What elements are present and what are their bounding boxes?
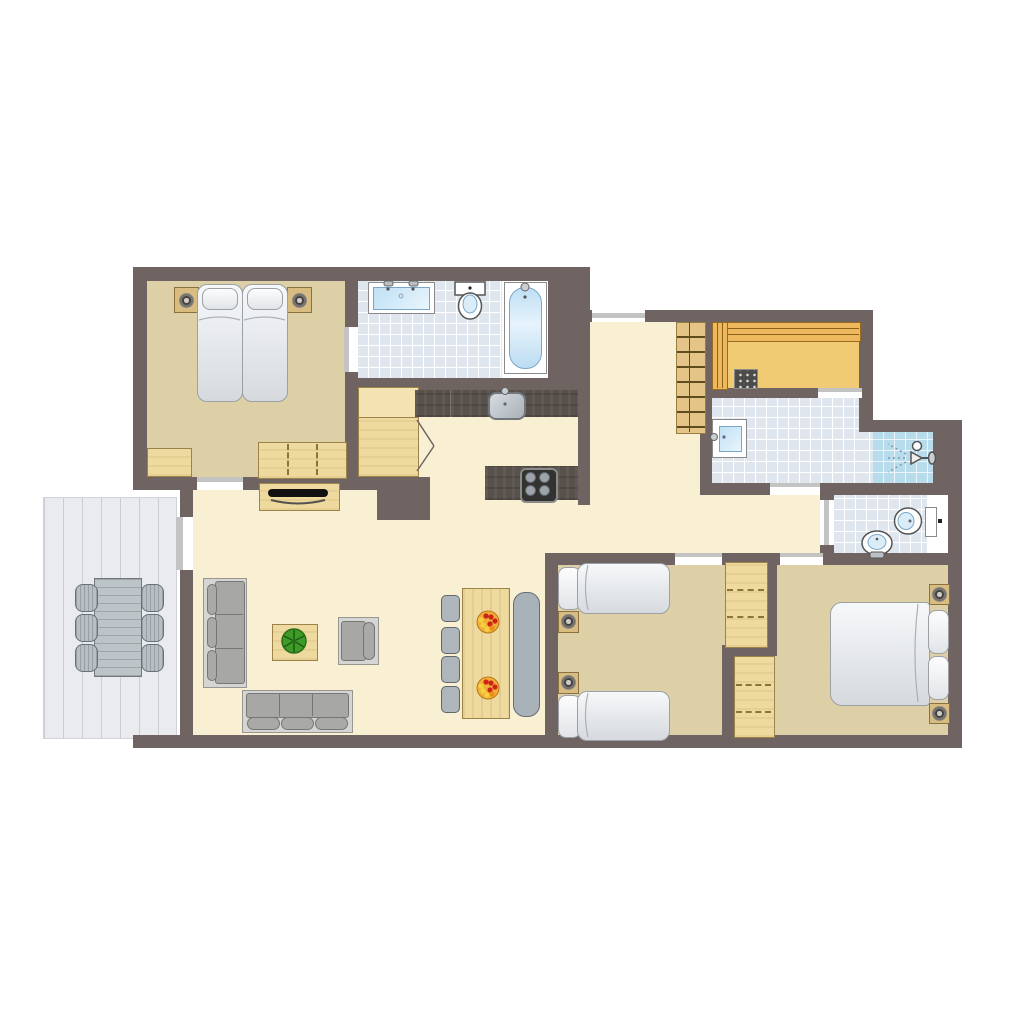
wardrobe-door-line [316, 444, 318, 475]
wardrobe [725, 562, 768, 648]
wall [133, 267, 147, 490]
shower-room-floor2 [859, 432, 873, 483]
ladder-rail [689, 322, 690, 432]
pillow [928, 610, 949, 654]
sauna-bench-left [712, 322, 728, 390]
sofa-seam [215, 614, 243, 615]
loft-ladder [676, 322, 706, 434]
burner [539, 472, 550, 483]
lamp [932, 706, 947, 721]
double-bed [830, 602, 930, 706]
television [268, 489, 328, 497]
sofa-seam [312, 693, 313, 716]
shower-cubicle-floor [873, 432, 933, 483]
dining-table [462, 588, 510, 719]
lamp [179, 293, 194, 308]
wardrobe [258, 442, 347, 479]
wall [545, 553, 558, 748]
hallway-floor-right [700, 495, 820, 553]
wall [578, 322, 590, 505]
terrace-sliding-door [176, 517, 183, 570]
dining-chair [441, 656, 460, 683]
outdoor-chair [75, 644, 98, 672]
wall [948, 495, 962, 748]
low-cabinet [147, 448, 192, 477]
counter-seam [450, 390, 451, 417]
small-bathroom-door [824, 500, 829, 545]
wardrobe [734, 656, 775, 738]
dining-bench [513, 592, 540, 717]
sauna-bench-slat [717, 322, 718, 388]
sofa-back [246, 693, 349, 718]
wardrobe-door-line [736, 711, 771, 713]
armchair-back [363, 622, 375, 660]
small-bathroom-floor [834, 495, 927, 553]
sauna-bench-slat [722, 322, 723, 388]
pillow [202, 288, 238, 310]
dining-chair [441, 627, 460, 654]
wardrobe-door-line [727, 616, 764, 618]
lamp [561, 614, 576, 629]
wall [133, 267, 562, 281]
outdoor-table [94, 578, 142, 677]
wardrobe-door-line [727, 589, 764, 591]
built-in-closet-upper [358, 387, 419, 419]
outdoor-chair [141, 584, 164, 612]
wardrobe-door-line [736, 684, 771, 686]
lamp [561, 675, 576, 690]
wall [722, 650, 734, 748]
sofa-seat-cushion [281, 717, 314, 730]
sofa-armrest [207, 584, 217, 615]
sofa-armrest [207, 617, 217, 648]
twin-bedroom-door [675, 553, 722, 557]
vanity-basin [373, 287, 430, 310]
bedroom-bathroom-door [344, 327, 349, 372]
entrance-door-window [592, 313, 645, 318]
sofa-seat-cushion [247, 717, 280, 730]
sauna-heater [734, 369, 758, 389]
outdoor-chair [75, 614, 98, 642]
single-bed [577, 563, 670, 614]
sauna-bench-top [712, 322, 861, 342]
wall [859, 420, 962, 432]
bathtub-inner [509, 287, 542, 369]
sofa-seat-cushion [315, 717, 348, 730]
burner [525, 472, 536, 483]
sofa-armrest [207, 650, 217, 681]
master-bedroom-door [197, 477, 243, 482]
lamp [932, 587, 947, 602]
double-bedroom-door [780, 553, 823, 557]
dining-chair [441, 595, 460, 622]
sauna-bench-slat [712, 328, 859, 329]
wall [377, 490, 430, 520]
coffee-table [272, 624, 318, 661]
sofa-seam [215, 648, 243, 649]
pillow [928, 656, 949, 700]
sofa-seam [279, 693, 280, 716]
pillow [247, 288, 283, 310]
tv-cabinet [259, 483, 340, 511]
single-bed [577, 691, 670, 741]
dining-chair [441, 686, 460, 713]
outdoor-chair [75, 584, 98, 612]
built-in-closet-lower [358, 417, 419, 477]
shower-room-sink-basin [719, 426, 742, 452]
sofa-seat [215, 581, 245, 684]
outdoor-chair [141, 614, 164, 642]
lamp [292, 293, 307, 308]
sauna-door [818, 388, 862, 392]
burner [525, 485, 536, 496]
sauna-bench-slat [712, 334, 859, 335]
shower-room-door [770, 483, 820, 487]
kitchen-sink [488, 392, 526, 420]
burner [539, 485, 550, 496]
floor-plan [0, 0, 1024, 1024]
outdoor-chair [141, 644, 164, 672]
wall [859, 310, 873, 432]
toilet-tank [925, 507, 937, 537]
wardrobe-door-line [287, 444, 289, 475]
